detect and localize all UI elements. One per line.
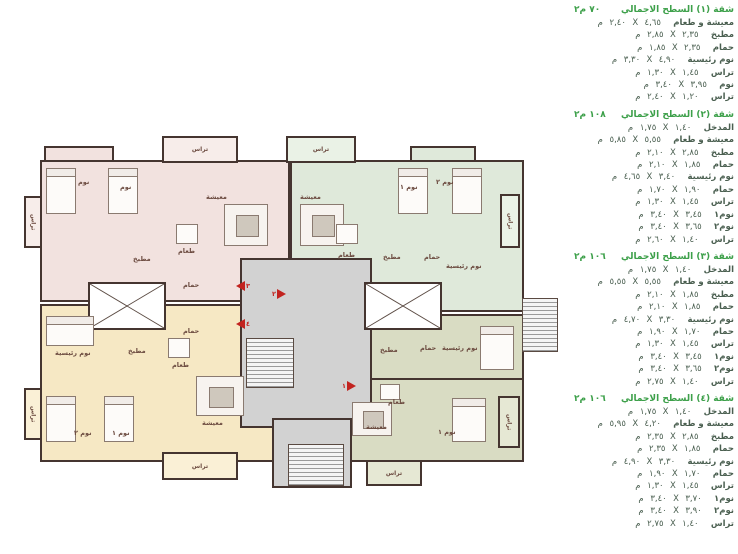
room-label-living: معيشة [300,193,321,201]
dimension-row: مطبخم٢,١٠X٢,٨٥ [560,147,734,159]
dimension-a: ٢,٨٥ [680,431,701,443]
room-name: تراس [711,480,734,492]
terrace-label: تراس [30,406,37,422]
room-label-kitchen: مطبخ [128,347,146,355]
dimension-row: نوم رئيسيةم٣,٣٠X٤,٩٠ [560,54,734,66]
terrace-label: تراس [386,470,402,477]
unit-meter: م [634,289,642,301]
times-sign: X [671,326,679,338]
room-name: معيشة و طعام [673,418,734,430]
bed-pillow [453,169,481,177]
room-name: معيشة و طعام [673,134,734,146]
times-sign: X [645,171,653,183]
room-dimensions: م٢,١٠X١,٨٥ [634,289,701,301]
room-name: مطبخ [711,431,734,443]
unit-meter: م [634,147,642,159]
dimension-row: المدخلم١,٧٥X١,٤٠ [560,264,734,276]
dimension-a: ١,٢٠ [680,91,701,103]
times-sign: X [669,29,677,41]
times-sign: X [672,505,680,517]
dimension-row: حمامم٢,١٠X١,٨٥ [560,159,734,171]
dimension-b: ٣,٤٠ [648,209,669,221]
room-label-kitchen: مطبخ [383,253,401,261]
entrance-marker-4: ٤ [236,319,250,329]
dimension-b: ٣,٤٠ [648,493,669,505]
room-label-bath: حمام [183,281,199,289]
times-sign: X [672,493,680,505]
unit-meter: م [634,196,642,208]
coffee-table [209,387,234,408]
room-name: تراس [711,376,734,388]
dimension-row: مطبخم٢,١٠X١,٨٥ [560,289,734,301]
room-dimensions: م٣,٤٠X٣,٩٥ [642,79,709,91]
terrace-right-green: تراس [500,194,520,248]
unit-meter: م [637,363,645,375]
dimension-row: حمامم١,٧٠X١,٩٠ [560,184,734,196]
terrace-label: تراس [192,463,208,470]
room-dimensions: م١,٣٠X١,٤٥ [634,480,701,492]
room-dimensions: م١,٨٥X٢,٣٥ [636,42,703,54]
dimension-row: تراسم١,٣٠X١,٤٥ [560,196,734,208]
times-sign: X [671,443,679,455]
room-dimensions: م١,٧٥X١,٤٠ [627,406,694,418]
arrow-right-icon [277,289,286,299]
dimension-a: ١,٤٥ [680,338,701,350]
room-label-dining: طعام [388,398,405,406]
unit-meter: م [634,480,642,492]
dimension-b: ٣,٣٠ [621,54,642,66]
coffee-table [312,215,335,237]
cross-lines-icon [90,284,164,328]
room-dimensions: م٤,٧٠X٣,٣٠ [610,314,677,326]
dimension-a: ٣,٩٠ [683,505,704,517]
room-dimensions: م٤,٩٠X٣,٣٠ [610,456,677,468]
terrace-label: تراس [192,146,208,153]
bed-pillow [47,397,75,405]
unit-meter: م [596,17,604,29]
dimension-row: حمامم٢,١٠X١,٨٥ [560,301,734,313]
unit-meter: م [637,505,645,517]
dimension-row: حمامم٢,٣٥X١,٨٥ [560,443,734,455]
dimension-b: ٢,٧٥ [645,518,666,530]
cross-lines-icon [366,284,440,328]
times-sign: X [672,209,680,221]
room-name: نوم٢ [714,505,734,517]
dimension-row: نوم١م٣,٤٠X٣,٤٥ [560,351,734,363]
room-name: تراس [711,338,734,350]
room-name: حمام [713,184,734,196]
room-dimensions: م١,٣٠X١,٤٥ [634,67,701,79]
bed-furniture [452,398,486,442]
dimension-b: ١,٣٠ [645,196,666,208]
unit-meter: م [634,431,642,443]
bed-pillow [105,397,133,405]
entrance-number: ٣ [246,282,250,290]
times-sign: X [645,54,653,66]
unit-meter: م [636,326,644,338]
times-sign: X [662,406,670,418]
dimension-row: نومم٣,٤٠X٣,٩٥ [560,79,734,91]
times-sign: X [669,147,677,159]
dimension-b: ٢,٨٥ [645,29,666,41]
dimension-a: ٢,٣٥ [680,29,701,41]
dining-table [176,224,198,244]
side-staircase [522,298,558,352]
dimension-b: ١,٩٠ [647,326,668,338]
room-dimensions: م٣,٣٠X٤,٩٠ [610,54,677,66]
bed-pillow [481,327,513,335]
times-sign: X [631,276,639,288]
dimension-a: ٣,٧٠ [683,493,704,505]
times-sign: X [669,234,677,246]
dimension-b: ٣,٤٠ [653,79,674,91]
room-label-living: معيشة [366,423,387,431]
times-sign: X [672,351,680,363]
dimension-row: نوم رئيسيةم٤,٦٥X٣,٤٠ [560,171,734,183]
room-name: المدخل [704,406,734,418]
dimension-b: ٥,٨٥ [607,134,628,146]
dimension-b: ٢,٦٠ [645,234,666,246]
section-title: شقة (٢) السطح الاجمالي [621,109,734,122]
unit-meter: م [627,264,635,276]
section-title: شقة (٣) السطح الاجمالي [621,251,734,264]
dimension-row: حمامم١,٨٥X٢,٣٥ [560,42,734,54]
room-dimensions: م٢,٤٠X١,٢٠ [634,91,701,103]
unit-meter: م [610,54,618,66]
room-label-master: نوم رئيسية [55,349,91,357]
room-dimensions: م٢,١٠X٢,٨٥ [634,147,701,159]
times-sign: X [662,122,670,134]
dimension-a: ٣,٩٥ [688,79,709,91]
room-name: مطبخ [711,147,734,159]
terrace-label: تراس [30,214,37,230]
section-title: شقة (١) السطح الاجمالي [621,4,734,17]
dimension-row: نوم١م٣,٤٠X٣,٧٠ [560,493,734,505]
room-dimensions: م١,٣٠X١,٤٥ [634,338,701,350]
room-dimensions: م٣,٤٠X٣,٦٥ [637,363,704,375]
entrance-marker-1: ١ [342,381,356,391]
sofa-furniture [224,204,268,246]
times-sign: X [669,376,677,388]
section-title: شقة (٤) السطح الاجمالي [621,393,734,406]
dimension-a: ١,٤٠ [680,234,701,246]
times-sign: X [671,468,679,480]
bed-furniture [46,168,76,214]
unit-meter: م [637,209,645,221]
times-sign: X [669,196,677,208]
dimension-row: تراسم١,٣٠X١,٤٥ [560,67,734,79]
room-name: مطبخ [711,29,734,41]
dimension-row: نوم٢م٣,٤٠X٣,٩٠ [560,505,734,517]
room-name: حمام [713,301,734,313]
room-name: نوم٢ [714,363,734,375]
dimension-row: تراسم١,٣٠X١,٤٥ [560,338,734,350]
unit-meter: م [636,184,644,196]
unit-meter: م [634,518,642,530]
dimension-row: مطبخم٢,٨٥X٢,٣٥ [560,29,734,41]
dimension-row: معيشة و طعامم٥,٨٥X٥,٥٥ [560,134,734,146]
bed-pillow [47,317,93,325]
unit-meter: م [636,301,644,313]
dimension-b: ٢,٣٥ [647,443,668,455]
unit-meter: م [642,79,650,91]
unit-meter: م [636,468,644,480]
times-sign: X [671,42,679,54]
dimension-a: ٣,٦٥ [683,363,704,375]
dimension-a: ١,٧٠ [682,326,703,338]
unit-meter: م [596,418,604,430]
dimension-b: ٣,٤٠ [648,505,669,517]
times-sign: X [669,289,677,301]
dimension-row: تراسم٢,٦٠X١,٤٠ [560,234,734,246]
room-dimensions: م١,٩٠X١,٧٠ [636,326,703,338]
unit-meter: م [596,134,604,146]
times-sign: X [672,363,680,375]
dimension-b: ٢,٧٥ [645,376,666,388]
dimension-a: ١,٨٥ [680,289,701,301]
room-dimensions: م٣,٤٠X٣,٤٥ [637,209,704,221]
dimension-b: ١,٧٥ [638,122,659,134]
room-name: تراس [711,67,734,79]
room-label-bed: نوم [78,178,89,186]
arrow-left-icon [236,281,245,291]
room-label-dining: طعام [178,247,195,255]
dimension-b: ٣,٤٠ [648,363,669,375]
dimension-a: ٤,٩٠ [656,54,677,66]
dimension-b: ٢,١٠ [647,159,668,171]
unit-meter: م [637,221,645,233]
room-dimensions: م٥,٩٥X٤,٢٠ [596,418,663,430]
room-name: حمام [713,42,734,54]
bed-furniture [480,326,514,370]
dimension-b: ١,٣٠ [645,67,666,79]
dimension-a: ١,٤٠ [673,406,694,418]
unit-meter: م [610,456,618,468]
room-name: معيشة و طعام [673,17,734,29]
times-sign: X [645,456,653,468]
dimension-b: ١,٩٠ [647,468,668,480]
dimension-a: ٣,٤٠ [656,171,677,183]
apartment-section: شقة (١) السطح الاجمالي٧٠ م٢معيشة و طعامم… [560,4,734,104]
dimension-tables: شقة (١) السطح الاجمالي٧٠ م٢معيشة و طعامم… [560,4,734,535]
room-label-bed1: نوم ١ [400,183,418,191]
room-label-master: نوم رئيسية [446,262,482,270]
times-sign: X [671,301,679,313]
apartment-section: شقة (٢) السطح الاجمالي١٠٨ م٢المدخلم١,٧٥X… [560,109,734,246]
dimension-a: ١,٧٠ [682,468,703,480]
bed-pillow [399,169,427,177]
dimension-row: المدخلم١,٧٥X١,٤٠ [560,406,734,418]
times-sign: X [671,184,679,196]
dimension-row: تراسم١,٣٠X١,٤٥ [560,480,734,492]
unit-meter: م [634,29,642,41]
room-dimensions: م٢,٣٥X٢,٨٥ [634,431,701,443]
room-label-bed2: نوم ٢ [436,178,454,186]
dimension-row: نوم١م٣,٤٠X٣,٤٥ [560,209,734,221]
section-header: شقة (٤) السطح الاجمالي١٠٦ م٢ [560,393,734,406]
dimension-a: ٣,٣٠ [656,456,677,468]
dimension-b: ٢,٤٠ [645,91,666,103]
times-sign: X [669,518,677,530]
entrance-marker-3: ٣ [236,281,250,291]
unit-meter: م [610,171,618,183]
unit-meter: م [636,159,644,171]
times-sign: X [669,431,677,443]
room-dimensions: م١,٧٠X١,٩٠ [636,184,703,196]
section-header: شقة (٣) السطح الاجمالي١٠٦ م٢ [560,251,734,264]
sofa-furniture [196,376,244,416]
dimension-a: ١,٨٥ [682,443,703,455]
room-label-bath: حمام [424,253,440,261]
room-name: المدخل [704,264,734,276]
bed-furniture [46,316,94,346]
entrance-number: ١ [342,382,346,390]
internal-staircase [246,338,294,388]
room-dimensions: م٤,٦٥X٣,٤٠ [610,171,677,183]
room-dimensions: م٣,٤٠X٣,٤٥ [637,351,704,363]
bed-pillow [453,399,485,407]
room-name: حمام [713,159,734,171]
room-name: معيشة و طعام [673,276,734,288]
times-sign: X [669,91,677,103]
dimension-b: ١,٧٥ [638,264,659,276]
unit-meter: م [627,406,635,418]
light-well-left [88,282,166,330]
entrance-number: ٢ [272,290,276,298]
dimension-a: ٣,٦٥ [683,221,704,233]
room-name: نوم رئيسية [687,314,734,326]
room-dimensions: م١,٣٠X١,٤٥ [634,196,701,208]
room-dimensions: م١,٧٥X١,٤٠ [627,264,694,276]
room-label-kitchen: مطبخ [380,346,398,354]
room-name: نوم رئيسية [687,54,734,66]
room-name: نوم١ [714,493,734,505]
room-label-bath: حمام [420,344,436,352]
bed-furniture [398,168,428,214]
unit-meter: م [634,67,642,79]
bed-furniture [452,168,482,214]
room-dimensions: م٥,٥٥X٥,٥٥ [596,276,663,288]
dimension-b: ٢,١٠ [645,289,666,301]
terrace-left-pink: تراس [24,196,42,248]
room-label-bed2: نوم ٢ [74,429,92,437]
unit-meter: م [610,314,618,326]
unit-meter: م [634,338,642,350]
terrace-label: تراس [313,146,329,153]
times-sign: X [631,418,639,430]
unit-meter: م [596,276,604,288]
room-name: نوم١ [714,209,734,221]
times-sign: X [631,134,639,146]
dining-table [336,224,358,244]
room-name: نوم رئيسية [687,456,734,468]
times-sign: X [669,338,677,350]
room-name: حمام [713,326,734,338]
bed-furniture [46,396,76,442]
dimension-a: ٥,٥٥ [642,134,663,146]
dimension-b: ١,٧٠ [647,184,668,196]
unit-meter: م [634,376,642,388]
dimension-b: ١,٣٠ [645,480,666,492]
dimension-b: ٢,٣٥ [645,431,666,443]
dimension-row: معيشة و طعامم٥,٥٥X٥,٥٥ [560,276,734,288]
dimension-b: ٣,٤٠ [648,221,669,233]
dimension-a: ١,٤٠ [673,264,694,276]
room-name: حمام [713,443,734,455]
dimension-row: تراسم٢,٧٥X١,٤٠ [560,518,734,530]
unit-meter: م [634,91,642,103]
terrace-top-pink: تراس [162,136,238,163]
room-name: نوم٢ [714,221,734,233]
floor-plan: تراس تراس تراس تراس تراس تراس تراس تراس … [0,0,560,554]
dimension-a: ١,٤٥ [680,67,701,79]
terrace-label: تراس [507,213,514,229]
room-dimensions: م٢,١٠X١,٨٥ [636,301,703,313]
dimension-row: تراسم٢,٧٥X١,٤٠ [560,376,734,388]
bed-furniture [108,168,138,214]
dimension-a: ٢,٣٥ [682,42,703,54]
bed-pillow [47,169,75,177]
dimension-a: ٣,٤٥ [683,209,704,221]
room-dimensions: م٥,٨٥X٥,٥٥ [596,134,663,146]
dimension-a: ١,٨٥ [682,301,703,313]
unit-meter: م [636,42,644,54]
room-name: نوم [719,79,734,91]
room-label-bath: حمام [183,327,199,335]
dimension-a: ١,٤٠ [680,518,701,530]
room-dimensions: م٣,٤٠X٣,٩٠ [637,505,704,517]
room-name: حمام [713,468,734,480]
apartment-section: شقة (٤) السطح الاجمالي١٠٦ م٢المدخلم١,٧٥X… [560,393,734,530]
room-name: المدخل [704,122,734,134]
dimension-row: نوم٢م٣,٤٠X٣,٦٥ [560,363,734,375]
room-label-bed1: نوم ١ [438,428,456,436]
section-area: ٧٠ م٢ [574,4,600,17]
dimension-b: ٣,٤٠ [648,351,669,363]
times-sign: X [677,79,685,91]
room-dimensions: م٢,٤٠X٤,٦٥ [596,17,663,29]
times-sign: X [671,159,679,171]
room-label-dining: طعام [172,361,189,369]
room-label-bed1: نوم ١ [112,429,130,437]
dimension-b: ٢,١٠ [645,147,666,159]
room-dimensions: م٢,٨٥X٢,٣٥ [634,29,701,41]
room-label-master: نوم رئيسية [442,344,478,352]
room-dimensions: م٢,٧٥X١,٤٠ [634,518,701,530]
room-label-living: معيشة [206,193,227,201]
section-header: شقة (٢) السطح الاجمالي١٠٨ م٢ [560,109,734,122]
room-name: نوم١ [714,351,734,363]
dimension-b: ٤,٦٥ [621,171,642,183]
dimension-a: ٣,٤٥ [683,351,704,363]
terrace-right-olive: تراس [498,396,520,448]
dimension-b: ٢,٤٠ [607,17,628,29]
dimension-a: ٤,٦٥ [642,17,663,29]
arrow-left-icon [236,319,245,329]
room-label-living: معيشة [202,419,223,427]
terrace-top-green: تراس [286,136,356,163]
dimension-a: ١,٤٠ [673,122,694,134]
room-name: تراس [711,234,734,246]
times-sign: X [669,67,677,79]
section-area: ١٠٨ م٢ [574,109,606,122]
room-dimensions: م٣,٤٠X٣,٧٠ [637,493,704,505]
dimension-a: ٣,٣٠ [656,314,677,326]
bed-pillow [109,169,137,177]
room-dimensions: م٣,٤٠X٣,٦٥ [637,221,704,233]
room-name: مطبخ [711,289,734,301]
times-sign: X [645,314,653,326]
